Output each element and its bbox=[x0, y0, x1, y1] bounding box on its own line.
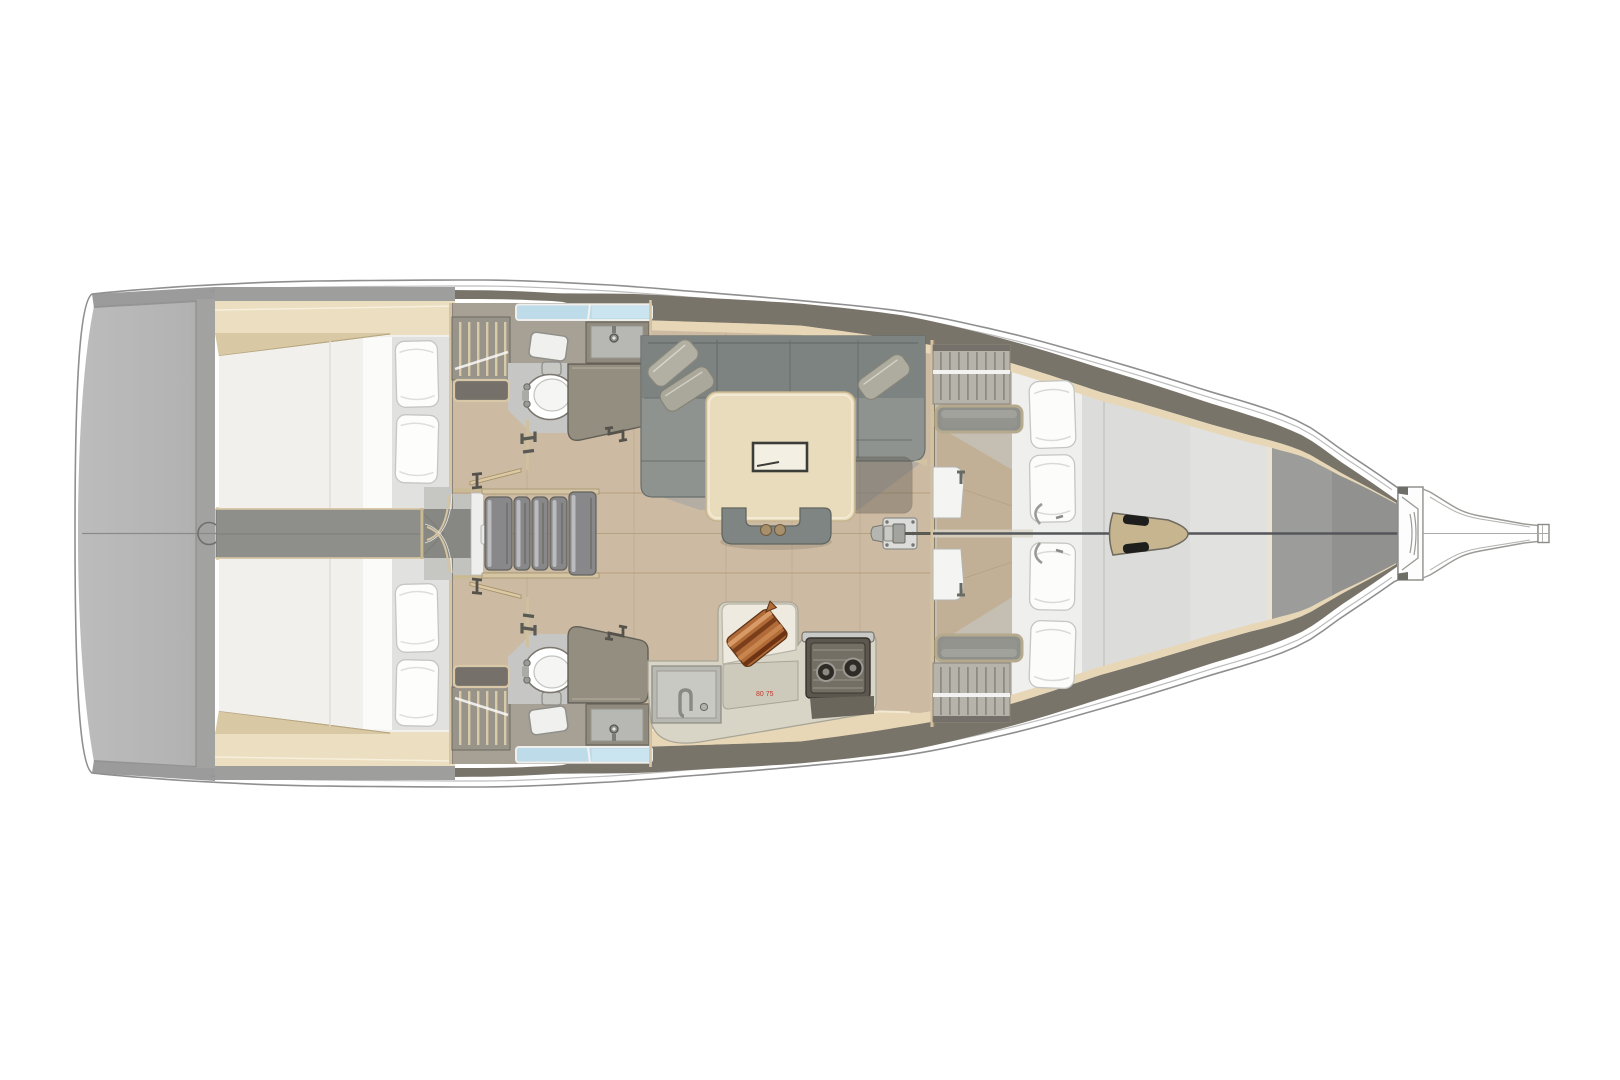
svg-text:80 75: 80 75 bbox=[756, 691, 774, 698]
